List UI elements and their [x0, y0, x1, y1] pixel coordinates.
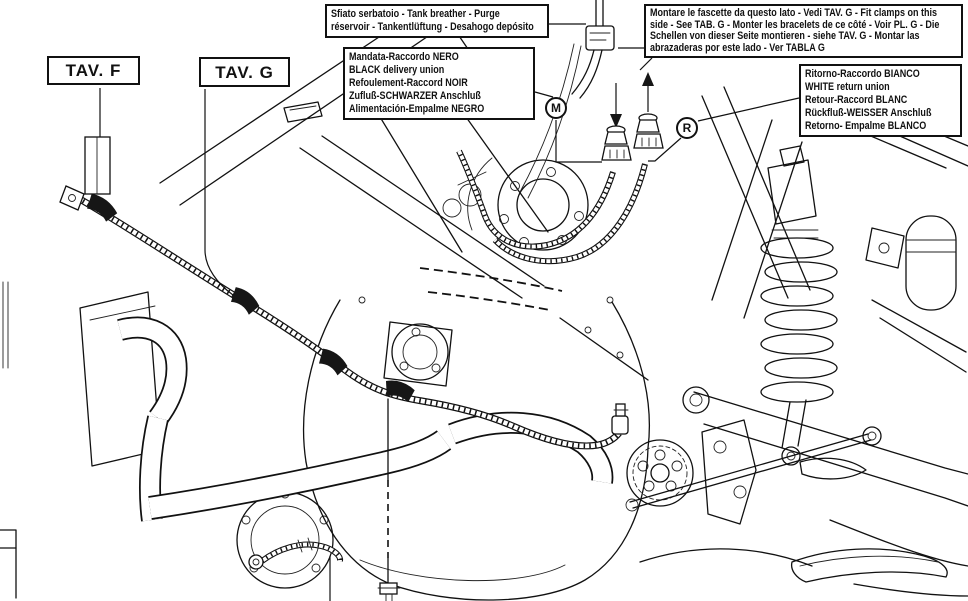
swingarm-and-controls — [626, 387, 968, 596]
callout-delivery-union: Mandata-Raccordo NERO BLACK delivery uni… — [343, 47, 535, 120]
rear-shock — [761, 146, 956, 465]
callout-delivery-line1: Mandata-Raccordo NERO — [349, 51, 529, 64]
hidden-hose-dashes — [420, 268, 562, 310]
marker-r-return: R — [676, 117, 698, 139]
callout-return-line2: WHITE return union — [805, 81, 956, 94]
marker-m-delivery: M — [545, 97, 567, 119]
diagram-stage: Sfiato serbatoio - Tank breather - Purge… — [0, 0, 968, 601]
fuel-hoses — [60, 151, 645, 601]
hose-end-fitting-left — [60, 186, 84, 210]
callout-return-line3: Retour-Raccord BLANC — [805, 94, 956, 107]
radiator-and-hoses — [80, 292, 602, 520]
callout-tank-breather: Sfiato serbatoio - Tank breather - Purge… — [325, 4, 549, 38]
callout-tav-f: TAV. F — [47, 56, 140, 85]
callout-tank-breather-line2: réservoir - Tankentlüftung - Desahogo de… — [331, 21, 543, 34]
callout-tank-breather-line1: Sfiato serbatoio - Tank breather - Purge — [331, 8, 543, 21]
callout-delivery-line4: Zufluß-SCHWARZER Anschluß — [349, 90, 529, 103]
callout-return-line1: Ritorno-Raccordo BIANCO — [805, 68, 956, 81]
callout-delivery-line5: Alimentación-Empalme NEGRO — [349, 103, 529, 116]
callout-return-union: Ritorno-Raccordo BIANCO WHITE return uni… — [799, 64, 962, 137]
callout-fit-clamps-text: Montare le fascette da questo lato - Ved… — [650, 8, 957, 54]
callout-tav-g: TAV. G — [199, 57, 290, 87]
engine-cases — [237, 158, 693, 600]
callout-delivery-line2: BLACK delivery union — [349, 64, 529, 77]
callout-return-line5: Retorno- Empalme BLANCO — [805, 120, 956, 133]
return-union — [634, 72, 663, 148]
callout-return-line4: Rückfluß-WEISSER Anschluß — [805, 107, 956, 120]
elbow-fitting-right — [612, 404, 628, 434]
delivery-union — [602, 83, 631, 160]
hose-clamps — [83, 192, 416, 403]
callout-fit-clamps: Montare le fascette da questo lato - Ved… — [644, 4, 963, 58]
callout-delivery-line3: Refoulement-Raccord NOIR — [349, 77, 529, 90]
